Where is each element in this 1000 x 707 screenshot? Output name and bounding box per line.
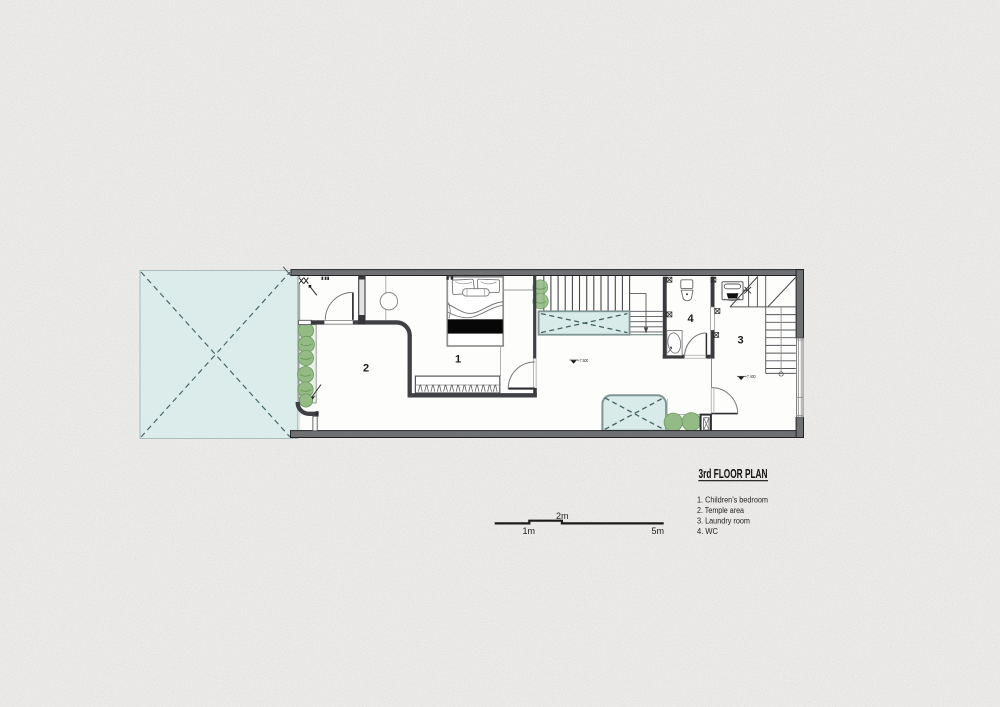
svg-text:4. WC: 4. WC bbox=[697, 527, 718, 536]
svg-text:2: 2 bbox=[363, 363, 369, 375]
svg-text:+7.500: +7.500 bbox=[578, 358, 589, 363]
svg-text:3: 3 bbox=[738, 335, 744, 347]
svg-text:5m: 5m bbox=[652, 526, 665, 536]
svg-text:4: 4 bbox=[688, 313, 695, 325]
svg-text:1: 1 bbox=[455, 354, 461, 366]
svg-text:2. Temple area: 2. Temple area bbox=[697, 506, 744, 515]
svg-text:1. Children's bedroom: 1. Children's bedroom bbox=[697, 495, 768, 504]
svg-text:3. Laundry room: 3. Laundry room bbox=[697, 517, 750, 526]
svg-text:2m: 2m bbox=[556, 511, 569, 521]
svg-text:3rd FLOOR PLAN: 3rd FLOOR PLAN bbox=[699, 466, 768, 481]
svg-text:1m: 1m bbox=[523, 526, 536, 536]
svg-text:+7.400: +7.400 bbox=[745, 374, 756, 379]
